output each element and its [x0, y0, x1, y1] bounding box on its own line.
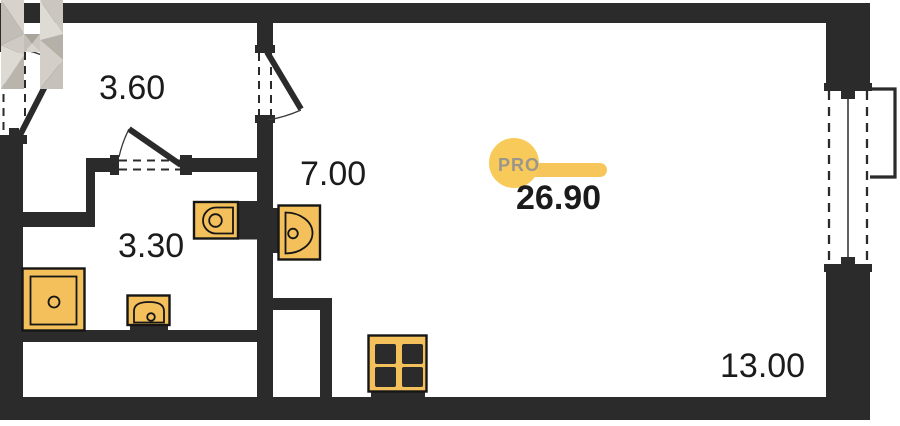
bathroom-door [119, 129, 181, 170]
shower [23, 269, 85, 331]
stove-burner [375, 344, 396, 364]
kitchen-sink [273, 206, 320, 260]
window [829, 91, 867, 264]
room-label-bathroom: 3.30 [118, 229, 184, 263]
stove-burner [402, 344, 423, 364]
stove [369, 336, 427, 399]
floor-plan: 3.60 3.30 7.00 13.00 PRO 26.90 [0, 0, 900, 426]
toilet [194, 201, 260, 240]
room-door [259, 52, 301, 120]
washbasin [128, 296, 170, 335]
entry-door [4, 49, 58, 139]
room-label-hallway: 3.60 [99, 71, 165, 105]
room-label-living-room: 13.00 [720, 349, 805, 383]
duct-shaft [273, 298, 332, 397]
balcony [870, 89, 895, 177]
stove-burner [375, 367, 396, 387]
room-label-kitchen: 7.00 [300, 157, 366, 191]
stove-burner [402, 367, 423, 387]
